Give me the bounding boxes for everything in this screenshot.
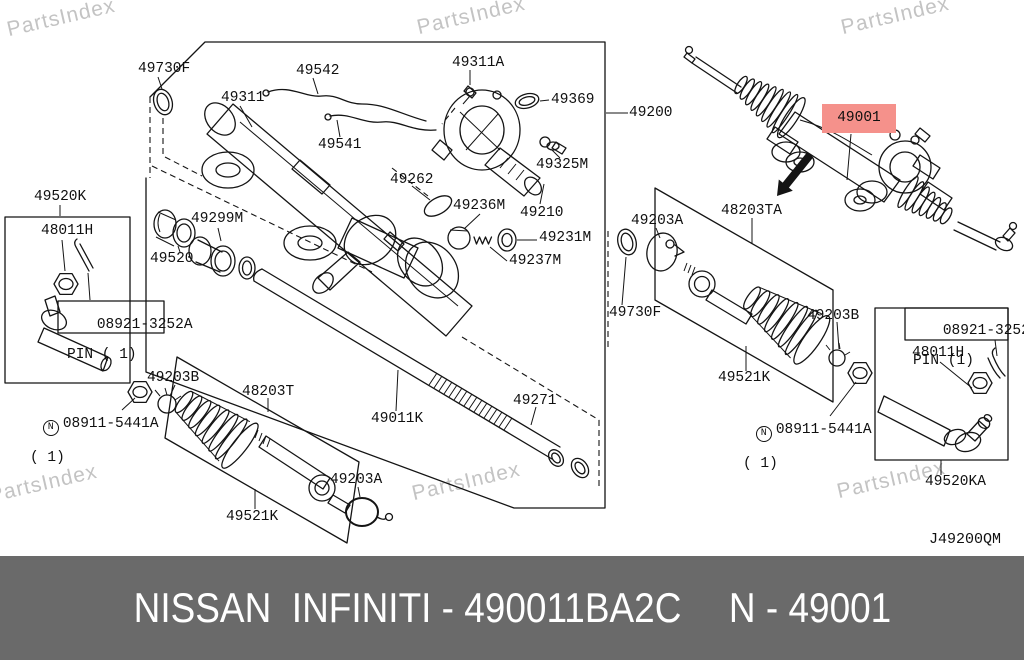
- part-number: 08911-5441A: [63, 416, 159, 432]
- part-number: 08921-3252A: [943, 323, 1024, 339]
- part-qty: ( 1): [8, 451, 159, 466]
- part-label-49325M[interactable]: 49325M: [536, 158, 588, 173]
- part-label-49311[interactable]: 49311: [221, 91, 265, 106]
- part-label-49203A-2[interactable]: 49203A: [631, 214, 683, 229]
- part-label-49730F-2[interactable]: 49730F: [609, 306, 661, 321]
- part-label-49011K[interactable]: 49011K: [371, 412, 423, 427]
- part-label-49521K-2[interactable]: 49521K: [718, 371, 770, 386]
- part-label-49520[interactable]: 49520: [150, 252, 194, 267]
- part-label-49203B[interactable]: 49203B: [147, 371, 199, 386]
- part-label-48203TA[interactable]: 48203TA: [721, 204, 782, 219]
- part-label-49542[interactable]: 49542: [296, 64, 340, 79]
- part-label-49237M[interactable]: 49237M: [509, 254, 561, 269]
- part-label-49521K[interactable]: 49521K: [226, 510, 278, 525]
- part-label-08911-5441A[interactable]: N08911-5441A ( 1): [8, 402, 159, 496]
- footer-part-ref-text: N - 49001: [728, 584, 890, 632]
- part-label-49231M[interactable]: 49231M: [539, 231, 591, 246]
- part-label-49203B-2[interactable]: 49203B: [807, 309, 859, 324]
- part-label-49299M[interactable]: 49299M: [191, 212, 243, 227]
- part-label-08911-5441A-2[interactable]: N08911-5441A ( 1): [721, 408, 872, 502]
- part-label-49520KA[interactable]: 49520KA: [925, 475, 986, 490]
- part-number: 08911-5441A: [776, 422, 872, 438]
- part-number: 08921-3252A: [97, 317, 193, 333]
- parts-diagram-page: PartsIndex PartsIndex PartsIndex PartsIn…: [0, 0, 1024, 660]
- assembled-steering-gear-drawing: [684, 47, 1017, 254]
- circled-n-icon: N: [756, 426, 772, 442]
- part-label-49311A[interactable]: 49311A: [452, 56, 504, 71]
- part-label-48011H-2[interactable]: 48011H: [912, 346, 964, 361]
- part-label-49730F[interactable]: 49730F: [138, 62, 190, 77]
- diagram-ref-code: J49200QM: [929, 531, 1001, 548]
- circled-n-icon: N: [43, 420, 59, 436]
- part-label-49236M[interactable]: 49236M: [453, 199, 505, 214]
- part-qty: ( 1): [721, 457, 872, 472]
- part-label-49200[interactable]: 49200: [629, 106, 673, 121]
- part-label-49541[interactable]: 49541: [318, 138, 362, 153]
- part-label-49210[interactable]: 49210: [520, 206, 564, 221]
- part-label-48203T[interactable]: 48203T: [242, 385, 294, 400]
- part-label-49262[interactable]: 49262: [390, 173, 434, 188]
- part-label-48011H[interactable]: 48011H: [41, 224, 93, 239]
- part-label-49001-highlighted[interactable]: 49001: [822, 104, 896, 133]
- footer-banner: NISSAN INFINITI - 490011BA2C N - 49001: [0, 556, 1024, 660]
- rack-shaft-drawing: [254, 269, 592, 481]
- part-label-49203A[interactable]: 49203A: [330, 473, 382, 488]
- part-label-49520K[interactable]: 49520K: [34, 190, 86, 205]
- part-label-49271[interactable]: 49271: [513, 394, 557, 409]
- part-label-49369[interactable]: 49369: [551, 93, 595, 108]
- part-qty: PIN ( 1): [62, 348, 193, 363]
- footer-brand-part-text: NISSAN INFINITI - 490011BA2C: [133, 584, 681, 632]
